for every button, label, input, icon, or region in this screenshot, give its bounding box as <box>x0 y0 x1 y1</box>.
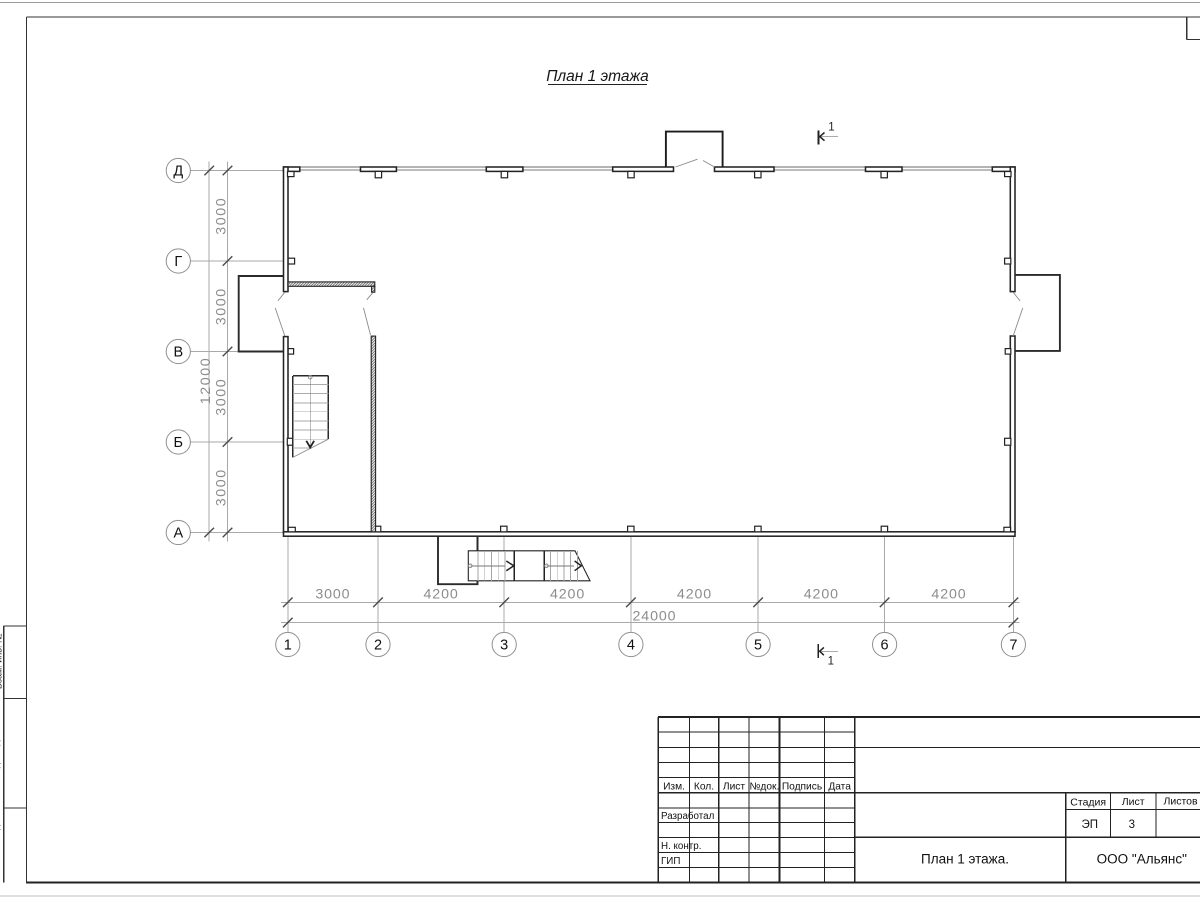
svg-text:4200: 4200 <box>550 587 585 603</box>
svg-text:ГИП: ГИП <box>661 856 680 867</box>
svg-text:№док.: №док. <box>749 781 779 792</box>
svg-text:3000: 3000 <box>315 587 350 603</box>
svg-text:Лист: Лист <box>723 781 745 792</box>
svg-text:3: 3 <box>1129 819 1135 831</box>
svg-text:1: 1 <box>828 122 834 134</box>
svg-text:4: 4 <box>627 638 635 654</box>
svg-text:24000: 24000 <box>633 608 677 624</box>
svg-text:Кол.: Кол. <box>694 781 714 792</box>
svg-text:3000: 3000 <box>214 468 230 506</box>
svg-text:Изм.: Изм. <box>663 781 685 792</box>
svg-text:Инв. № подл.: Инв. № подл. <box>0 817 1 873</box>
svg-text:7: 7 <box>1009 638 1017 654</box>
svg-text:Б: Б <box>174 435 184 451</box>
svg-text:6: 6 <box>881 638 889 654</box>
svg-text:План 1 этажа.: План 1 этажа. <box>921 852 1009 867</box>
svg-text:1: 1 <box>828 656 834 668</box>
svg-text:4200: 4200 <box>931 587 966 603</box>
svg-text:А: А <box>173 526 183 542</box>
svg-text:План 1 этажа: План 1 этажа <box>546 68 649 85</box>
svg-text:Подп. и дата: Подп. и дата <box>0 726 1 779</box>
svg-text:Стадия: Стадия <box>1070 797 1106 809</box>
svg-text:Взам. инв. №: Взам. инв. № <box>0 633 4 689</box>
svg-text:12000: 12000 <box>198 357 214 404</box>
svg-text:ЭП: ЭП <box>1082 819 1099 831</box>
svg-text:4200: 4200 <box>804 587 839 603</box>
svg-text:Лист: Лист <box>1122 796 1145 808</box>
svg-text:5: 5 <box>754 638 762 654</box>
svg-text:Н. контр.: Н. контр. <box>661 841 701 852</box>
svg-text:Листов: Листов <box>1163 796 1198 808</box>
svg-text:Д: Д <box>173 164 183 180</box>
svg-text:3000: 3000 <box>214 197 230 235</box>
svg-text:4200: 4200 <box>424 587 459 603</box>
svg-text:Разработал: Разработал <box>661 811 715 822</box>
svg-text:ООО "Альянс": ООО "Альянс" <box>1097 852 1187 867</box>
svg-text:Дата: Дата <box>828 781 851 792</box>
svg-text:4200: 4200 <box>677 587 712 603</box>
svg-text:3: 3 <box>500 638 508 654</box>
svg-text:3000: 3000 <box>214 378 230 416</box>
svg-text:3000: 3000 <box>214 287 230 325</box>
svg-text:1: 1 <box>284 638 292 654</box>
svg-text:Г: Г <box>174 254 182 270</box>
svg-text:Подпись: Подпись <box>782 781 822 792</box>
svg-text:В: В <box>173 345 183 361</box>
svg-text:2: 2 <box>374 638 382 654</box>
